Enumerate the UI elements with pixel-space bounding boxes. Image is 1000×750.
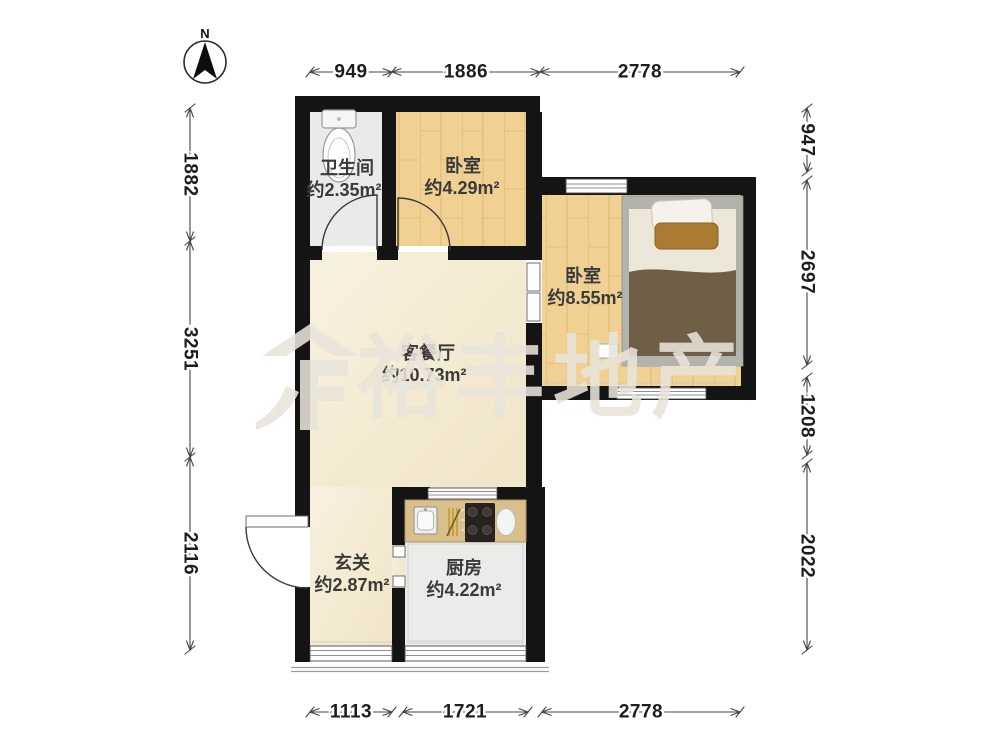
svg-text:2778: 2778: [619, 702, 663, 723]
bathroom-area: 约2.35m²: [306, 179, 381, 200]
dim-top-1: 1886: [392, 62, 544, 83]
dim-right-1: 2697: [797, 176, 818, 369]
dim-bottom-1: 1721: [399, 702, 532, 723]
svg-text:1882: 1882: [180, 152, 201, 196]
dim-bottom-2: 2778: [538, 702, 744, 723]
dim-right-3: 2022: [797, 459, 818, 654]
kitchen-bottom-window: [405, 646, 526, 661]
bedroom2-sliding-door: [527, 263, 540, 321]
svg-text:1208: 1208: [797, 394, 818, 438]
bedroom1-label: 卧室: [445, 155, 481, 176]
wall-kitchen-left-upper: [392, 487, 405, 545]
kitchen-label: 厨房: [446, 557, 482, 578]
wall-left-upper: [295, 96, 310, 527]
wall-kitchen-top-b: [497, 487, 542, 500]
dim-left-1: 3251: [180, 241, 201, 461]
svg-text:1886: 1886: [444, 62, 488, 83]
kitchen-passthrough-window: [428, 488, 497, 499]
entry-door: [246, 516, 308, 588]
balcony-sill-line: [291, 668, 549, 672]
kitchen-counter: [405, 500, 526, 542]
svg-text:2116: 2116: [180, 532, 201, 575]
bathroom-label: 卫生间: [320, 157, 374, 178]
svg-text:1113: 1113: [330, 702, 372, 723]
north-label: N: [200, 26, 209, 41]
dim-right-2: 1208: [797, 373, 818, 459]
wall-kitchen-right: [526, 487, 545, 662]
floorplan-svg: 卫生间 约2.35m² 卧室 约4.29m² 卧室 约8.55m² 客餐厅 约1…: [0, 0, 1000, 750]
plate-icon: [497, 509, 516, 536]
dim-top-2: 2778: [540, 62, 744, 83]
wall-left-lower: [295, 587, 310, 662]
wall-mid-b: [377, 246, 398, 260]
wall-kitchen-left-lower: [392, 588, 405, 662]
bedroom2-top-window: [566, 179, 627, 193]
entry-area: 约2.87m²: [314, 574, 389, 595]
dim-left-2: 2116: [180, 457, 201, 654]
bedroom1-area: 约4.29m²: [424, 177, 499, 198]
wall-bath-divider: [382, 112, 396, 246]
bedroom2-area: 约8.55m²: [547, 287, 622, 308]
svg-text:949: 949: [334, 62, 367, 83]
floorplan-canvas: 卫生间 约2.35m² 卧室 约4.29m² 卧室 约8.55m² 客餐厅 约1…: [0, 0, 1000, 750]
sink-icon: [414, 507, 437, 534]
kitchen-area: 约4.22m²: [426, 579, 501, 600]
dim-top-0: 949: [306, 62, 396, 83]
dim-left-0: 1882: [180, 104, 201, 245]
watermark-text: 裕丰地产: [357, 329, 749, 429]
dim-bottom-0: 1113: [306, 702, 396, 723]
svg-text:2778: 2778: [618, 62, 662, 83]
north-arrow: N: [184, 26, 226, 83]
svg-text:947: 947: [797, 123, 818, 156]
svg-text:2022: 2022: [797, 534, 818, 578]
stove-icon: [463, 503, 496, 542]
wall-living-right-upper: [526, 112, 542, 260]
svg-text:2697: 2697: [797, 250, 818, 294]
svg-text:1721: 1721: [443, 702, 487, 723]
entry-label: 玄关: [334, 552, 370, 573]
entry-bottom-window: [310, 646, 392, 661]
wall-mid-a: [310, 246, 322, 260]
bedroom2-label: 卧室: [565, 265, 601, 286]
svg-text:3251: 3251: [180, 327, 201, 371]
dim-right-0: 947: [797, 104, 818, 176]
